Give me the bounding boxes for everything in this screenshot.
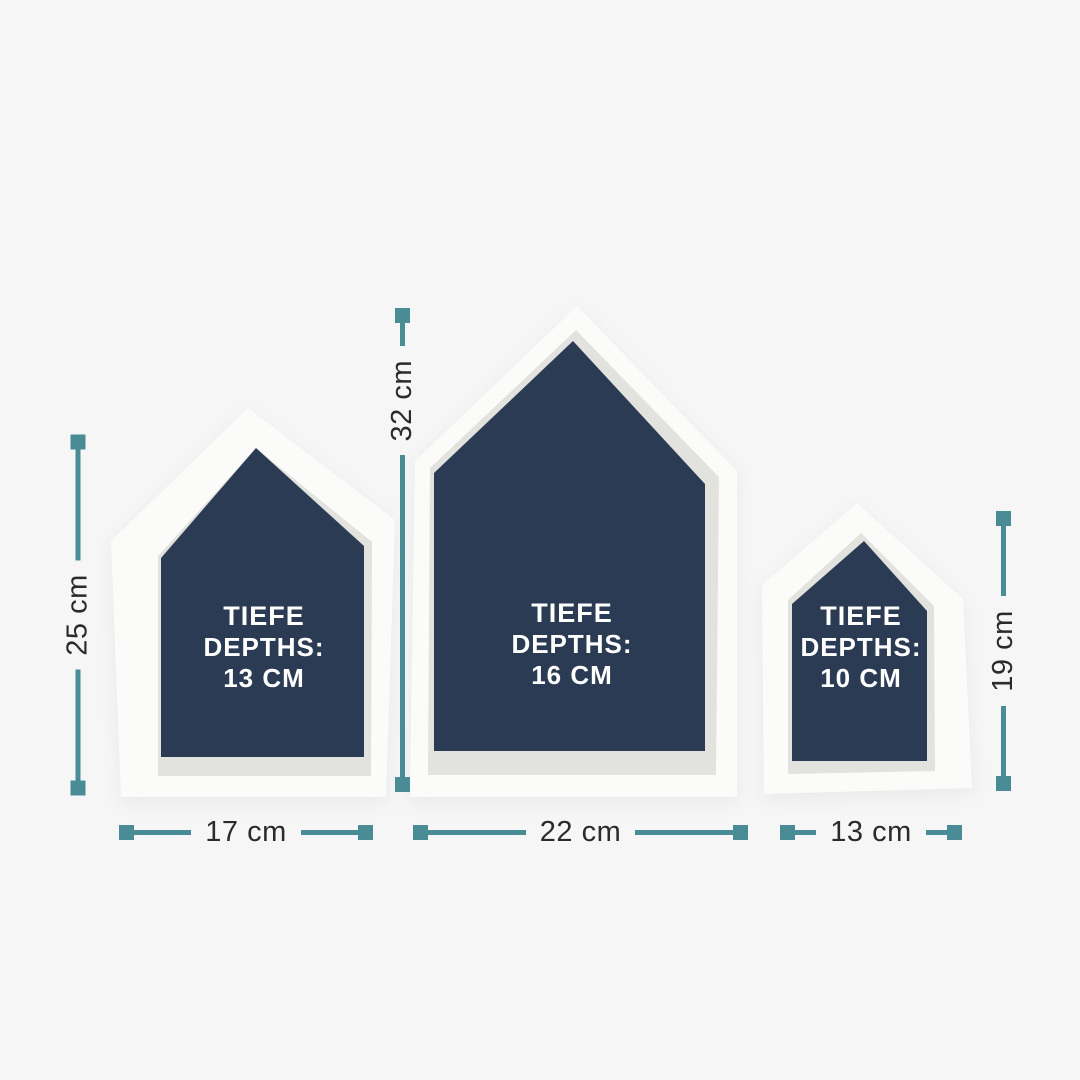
dimension-line (75, 449, 80, 560)
shelf-middle-depth-label: TIEFE DEPTHS: 16 CM (441, 598, 703, 691)
width-dimension-left: 17 cm (119, 810, 373, 854)
dimension-line (134, 830, 191, 835)
dimension-line (400, 455, 405, 777)
dimension-endcap (395, 777, 410, 792)
depth-label-word: DEPTHS: (133, 632, 395, 663)
dimension-line (400, 323, 405, 346)
width-dimension-right: 13 cm (780, 810, 962, 854)
shelf-right-depth-label: TIEFE DEPTHS: 10 CM (730, 601, 992, 694)
dimension-value: 13 cm (816, 810, 925, 854)
depth-label-value: 13 CM (133, 663, 395, 694)
dimension-value: 22 cm (526, 810, 635, 854)
dimension-line (75, 670, 80, 781)
width-dimension-middle: 22 cm (413, 810, 748, 854)
dimension-line (635, 830, 733, 835)
depth-label-word: DEPTHS: (441, 629, 703, 660)
dimension-line (1001, 706, 1006, 776)
dimension-endcap (70, 434, 85, 449)
dimension-endcap (395, 308, 410, 323)
depth-label-value: 10 CM (730, 663, 992, 694)
dimension-endcap (119, 825, 134, 840)
dimension-value: 19 cm (981, 596, 1025, 705)
dimension-value: 25 cm (56, 560, 100, 669)
depth-label-word: DEPTHS: (730, 632, 992, 663)
dimension-line (301, 830, 358, 835)
dimension-line (795, 830, 816, 835)
dimension-endcap (780, 825, 795, 840)
depth-label-title: TIEFE (441, 598, 703, 629)
shelf-middle (410, 306, 737, 797)
dimension-endcap (413, 825, 428, 840)
depth-label-title: TIEFE (133, 601, 395, 632)
dimension-line (1001, 526, 1006, 596)
depth-label-value: 16 CM (441, 660, 703, 691)
shelf-left-depth-label: TIEFE DEPTHS: 13 CM (133, 601, 395, 694)
height-dimension-left: 25 cm (56, 435, 100, 796)
dimension-endcap (996, 511, 1011, 526)
dimension-line (926, 830, 947, 835)
dimension-endcap (996, 776, 1011, 791)
dimension-value: 17 cm (191, 810, 300, 854)
depth-label-title: TIEFE (730, 601, 992, 632)
dimension-endcap (358, 825, 373, 840)
dimension-value: 32 cm (380, 346, 424, 455)
product-photo (0, 0, 1080, 1080)
product-dimension-diagram: TIEFE DEPTHS: 13 CM TIEFE DEPTHS: 16 CM … (0, 0, 1080, 1080)
height-dimension-right: 19 cm (981, 511, 1025, 791)
dimension-line (428, 830, 526, 835)
dimension-endcap (947, 825, 962, 840)
dimension-endcap (70, 781, 85, 796)
height-dimension-middle: 32 cm (380, 308, 424, 792)
dimension-endcap (733, 825, 748, 840)
